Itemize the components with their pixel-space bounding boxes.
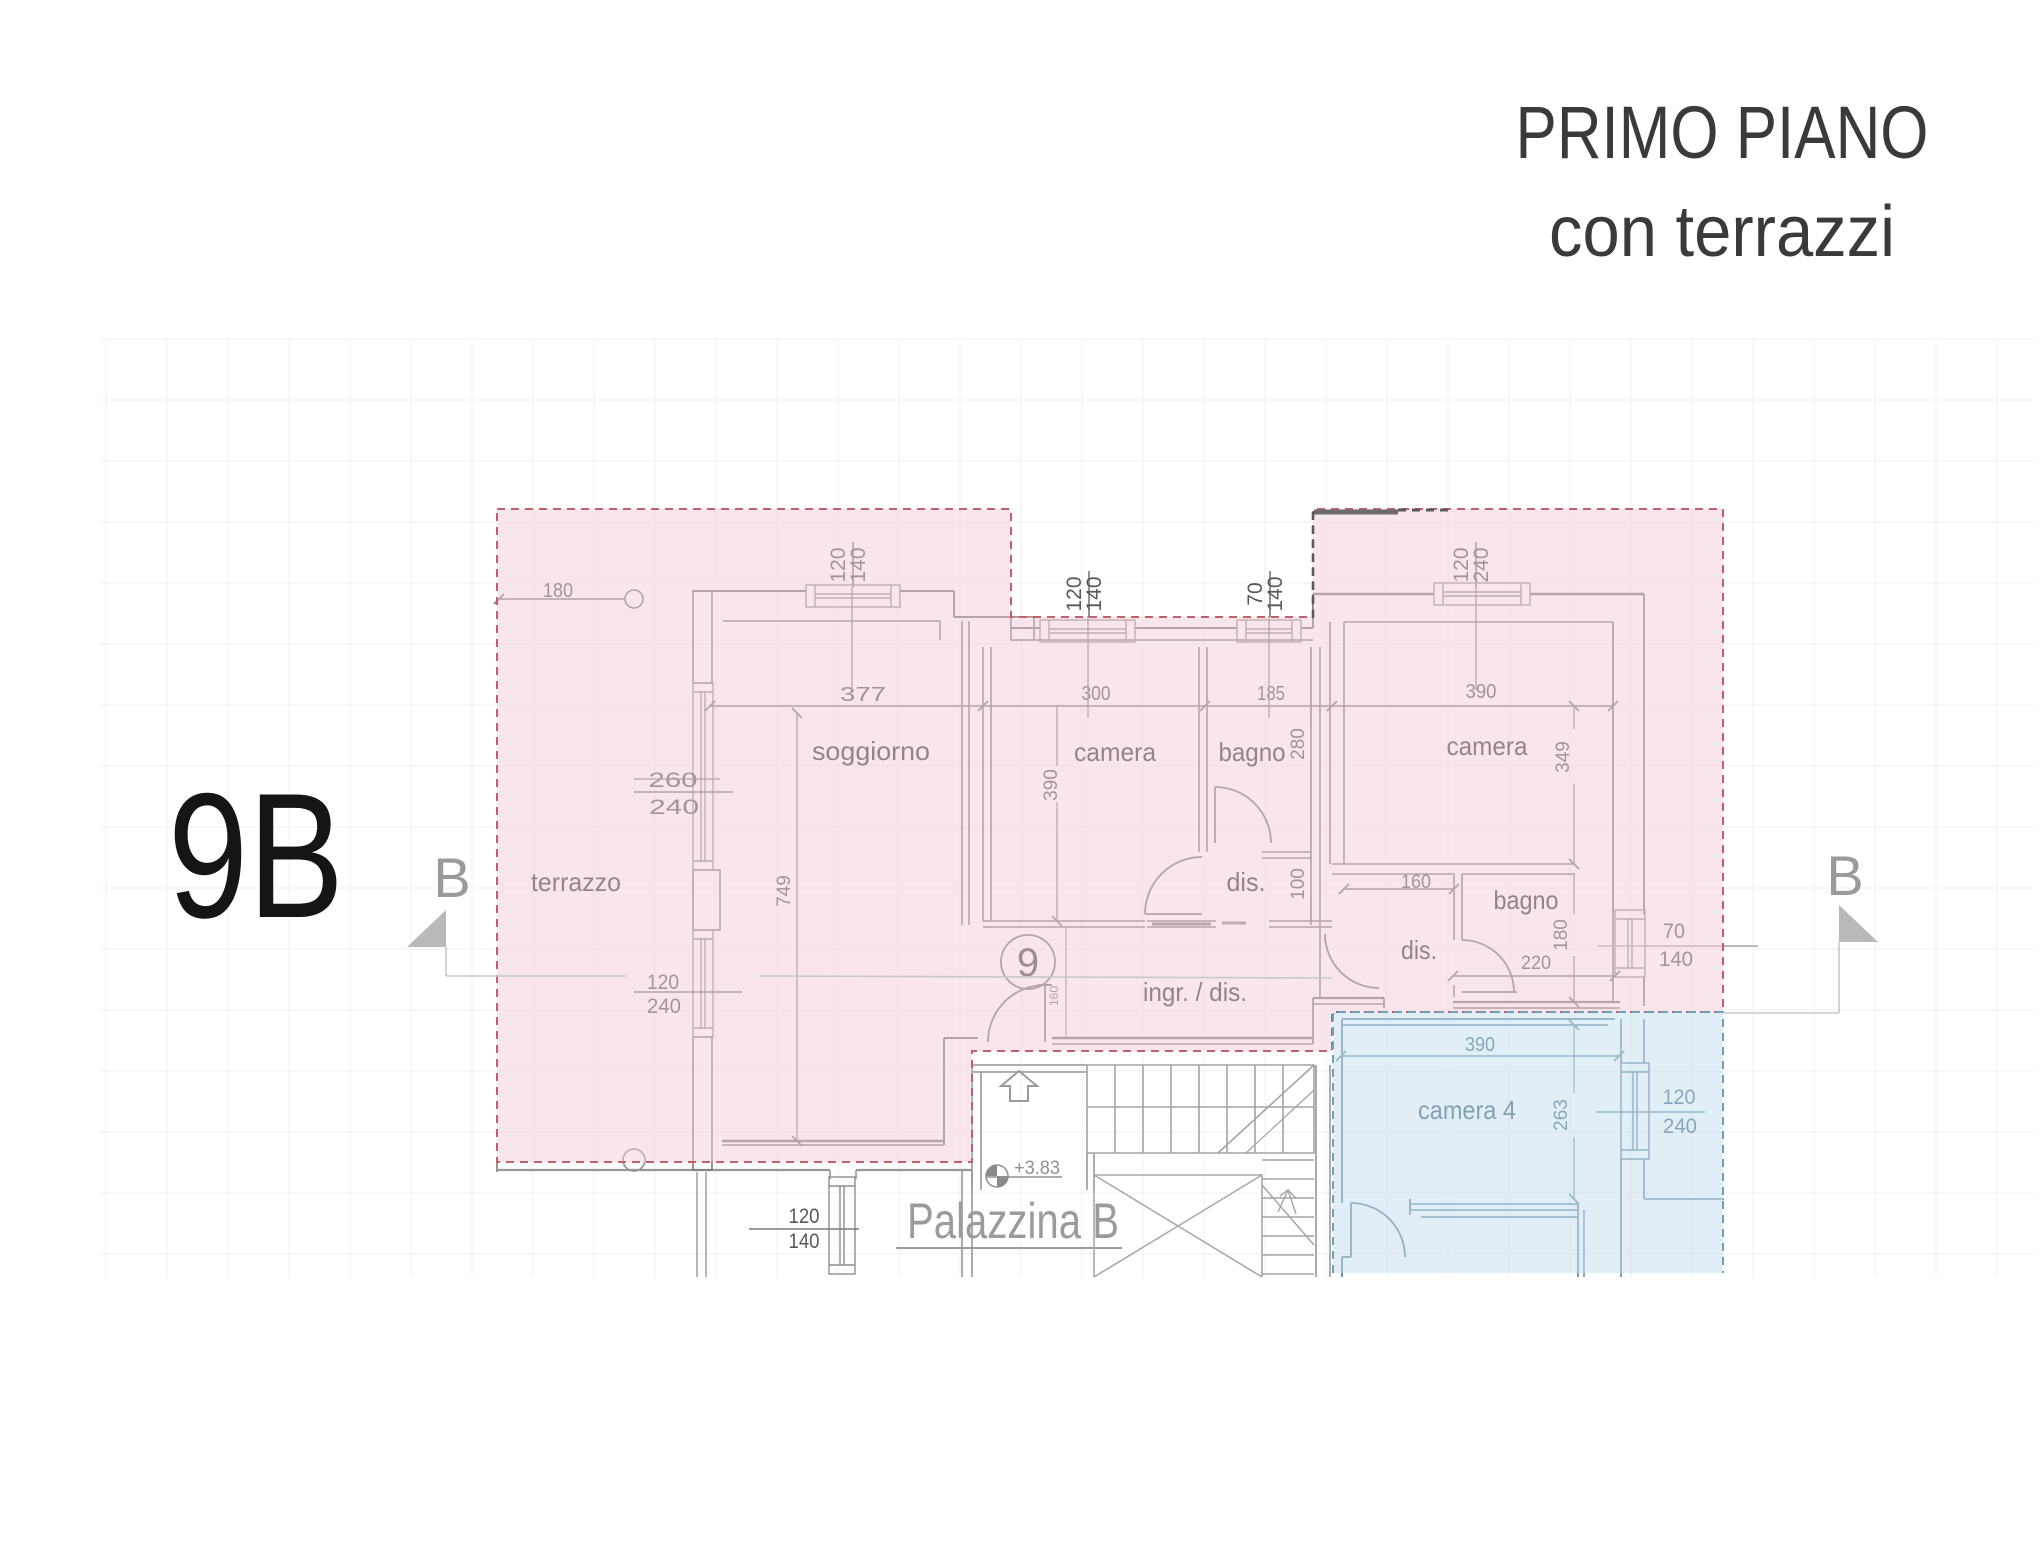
svg-text:140: 140 [789, 1230, 820, 1253]
svg-text:120: 120 [789, 1205, 820, 1228]
svg-text:140: 140 [1264, 576, 1287, 611]
svg-text:PRIMO PIANO: PRIMO PIANO [1516, 91, 1929, 174]
svg-text:9B: 9B [168, 756, 344, 955]
svg-text:con terrazzi: con terrazzi [1549, 192, 1895, 272]
svg-text:B: B [1826, 844, 1863, 907]
svg-text:B: B [433, 846, 470, 909]
svg-text:Palazzina B: Palazzina B [907, 1193, 1119, 1249]
svg-text:140: 140 [1083, 576, 1106, 611]
svg-text:+3.83: +3.83 [1014, 1158, 1060, 1179]
